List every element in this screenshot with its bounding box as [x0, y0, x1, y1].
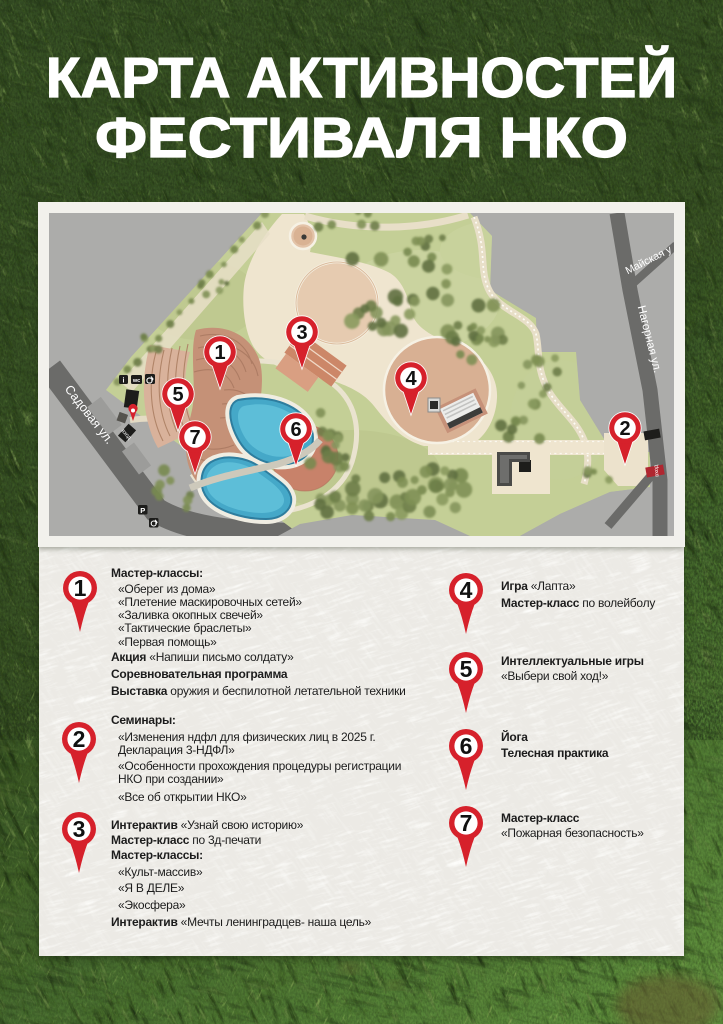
svg-text:2: 2: [619, 418, 630, 440]
svg-text:1: 1: [214, 342, 225, 364]
svg-text:wc: wc: [132, 378, 140, 384]
svg-text:3: 3: [73, 816, 86, 842]
svg-text:2: 2: [73, 726, 86, 752]
svg-text:i: i: [123, 378, 125, 385]
svg-text:7: 7: [189, 427, 200, 449]
svg-text:6: 6: [290, 419, 301, 441]
svg-text:4: 4: [405, 368, 417, 390]
svg-text:3: 3: [296, 322, 307, 344]
svg-text:6: 6: [460, 733, 473, 759]
svg-text:1: 1: [73, 575, 86, 601]
svg-text:P: P: [140, 506, 145, 515]
svg-text:7: 7: [460, 810, 473, 836]
svg-text:4: 4: [460, 577, 473, 603]
svg-text:5: 5: [172, 384, 183, 406]
svg-text:5: 5: [460, 656, 473, 682]
